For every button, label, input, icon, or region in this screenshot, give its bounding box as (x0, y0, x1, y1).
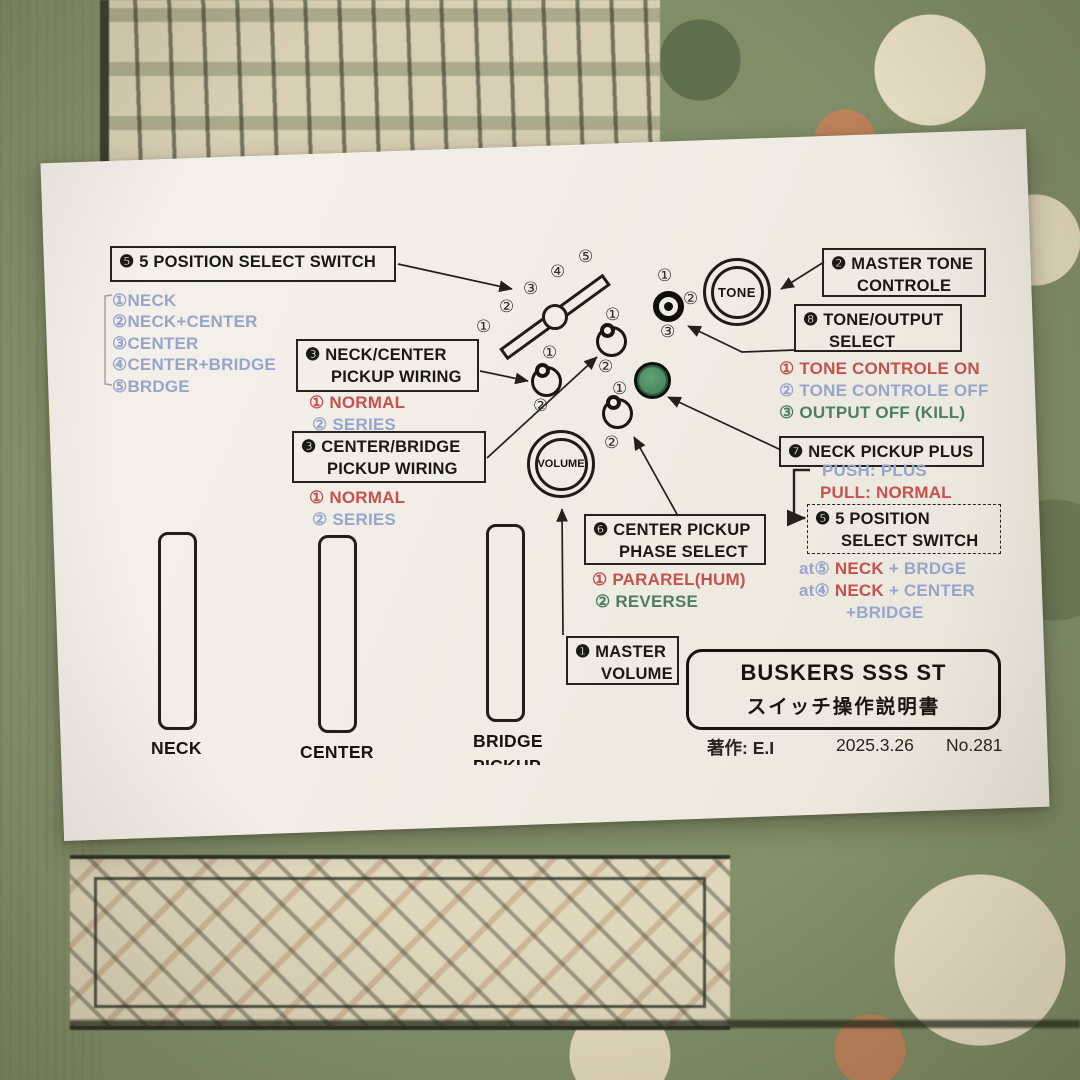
pickup-neck (158, 532, 197, 730)
box-text-line2: CONTROLE (831, 276, 977, 298)
box-text-line2: VOLUME (575, 664, 670, 686)
selector-pos-2: ② (683, 290, 698, 307)
option-neckcenter-normal: ① NORMAL (309, 393, 405, 413)
option-text: NORMAL (329, 488, 405, 507)
mini-switch-lever (600, 323, 615, 338)
box-text-line2: PICKUP WIRING (301, 459, 477, 481)
box-text: 5 POSITION SELECT SWITCH (139, 253, 376, 271)
mini-switch-a-pos2: ② (533, 397, 548, 414)
mini-switch-phase (602, 398, 633, 429)
badge-6: ❻ (593, 520, 608, 539)
pickup-bridge-label-clipped: PICKUP (473, 756, 543, 765)
diagram-layer: ❺ 5 POSITION SELECT SWITCH ①NECK ②NECK+C… (0, 0, 1080, 1080)
option-text: OUTPUT OFF (KILL) (799, 403, 965, 422)
option-text: REVERSE (615, 592, 698, 611)
option-num: ① (779, 359, 794, 378)
credit-author: 著作: E.I (707, 735, 774, 760)
title-line2: スイッチ操作説明書 (689, 690, 998, 719)
box-text-line2: PICKUP WIRING (305, 367, 470, 389)
lever-pos-4: ④ (550, 263, 565, 280)
badge-8: ❽ (803, 310, 818, 329)
option-num: ③ (779, 403, 794, 422)
label-box-5-position-select-switch: ❺ 5 POSITION SELECT SWITCH (110, 246, 396, 282)
position-list: ①NECK ②NECK+CENTER ③CENTER ④CENTER+BRIDG… (112, 290, 276, 397)
pickup-bridge-label: BRIDGE (473, 731, 543, 752)
tone-knob-label: TONE (711, 266, 764, 319)
volume-knob: VOLUME (527, 430, 595, 498)
at4-line: at④ NECK + CENTER (799, 581, 975, 601)
selector-center-dot (664, 302, 673, 311)
box-text-line2: PHASE SELECT (593, 542, 757, 564)
label-box-master-tone: ❷ MASTER TONE CONTROLE (822, 248, 986, 297)
pickup-bridge (486, 524, 525, 722)
title-line1: BUSKERS SSS ST (689, 660, 998, 686)
credit-number: No.281 (946, 735, 1002, 756)
position-item-4: ④CENTER+BRIDGE (112, 354, 276, 375)
badge-7: ❼ (788, 442, 803, 461)
option-num: ① (592, 570, 607, 589)
option-centerbridge-series: ② SERIES (312, 510, 396, 530)
mini-switch-a-pos1: ① (542, 344, 557, 361)
at-prefix: at④ (799, 581, 830, 600)
lever-pos-5: ⑤ (578, 248, 593, 265)
arrow-mastervolume-to-knob (562, 509, 563, 635)
title-box: BUSKERS SSS ST スイッチ操作説明書 (686, 649, 1001, 730)
bracket-position-list (105, 295, 112, 385)
option-pararel-hum: ① PARAREL(HUM) (592, 570, 746, 590)
option-pull-normal: PULL: NORMAL (820, 483, 952, 503)
credit-date: 2025.3.26 (836, 735, 914, 756)
box-text: MASTER (595, 643, 666, 661)
volume-knob-label: VOLUME (535, 438, 588, 491)
mini-switch-c-pos2: ② (604, 434, 619, 451)
box-text: NECK/CENTER (325, 346, 446, 364)
option-reverse: ② REVERSE (595, 592, 698, 612)
option-text: TONE CONTROLE OFF (799, 381, 988, 400)
position-item-3: ③CENTER (112, 333, 276, 354)
arrow-phase-to-switch (634, 437, 678, 516)
badge-3: ❸ (301, 437, 316, 456)
selector-pos-3: ③ (660, 323, 675, 340)
badge-1: ❶ (575, 642, 590, 661)
green-push-knob (634, 362, 671, 399)
at-red: NECK (835, 581, 884, 600)
option-num: ① (309, 488, 324, 507)
label-box-center-bridge-wiring: ❸ CENTER/BRIDGE PICKUP WIRING (292, 431, 486, 483)
arrow-mastertone-to-knob (781, 262, 824, 289)
lever-pos-2: ② (499, 298, 514, 315)
mini-switch-lever (535, 363, 550, 378)
arrow-toneoutput-to-bullseye (688, 326, 796, 352)
at-blue: + BRDGE (889, 559, 966, 578)
position-item-1: ①NECK (112, 290, 276, 311)
option-tone-on: ① TONE CONTROLE ON (779, 359, 980, 379)
position-item-2: ②NECK+CENTER (112, 311, 276, 332)
box-text: TONE/OUTPUT (823, 311, 943, 329)
option-num: ② (779, 381, 794, 400)
box-text: CENTER PICKUP (613, 521, 750, 539)
label-box-5-position-dashed: ❺ 5 POSITION SELECT SWITCH (807, 504, 1001, 554)
label-box-center-phase: ❻ CENTER PICKUP PHASE SELECT (584, 514, 766, 565)
option-centerbridge-normal: ① NORMAL (309, 488, 405, 508)
option-text: SERIES (332, 510, 396, 529)
label-box-neck-center-wiring: ❸ NECK/CENTER PICKUP WIRING (296, 339, 479, 392)
badge-3: ❸ (305, 345, 320, 364)
label-box-master-volume: ❶ MASTER VOLUME (566, 636, 679, 685)
pickup-neck-label: NECK (151, 738, 202, 759)
option-push-plus: PUSH: PLUS (822, 461, 927, 481)
badge-5: ❺ (119, 252, 134, 271)
arrow-neckplus-to-greenknob (668, 397, 781, 450)
at-prefix: at⑤ (799, 559, 830, 578)
at4-line-cont: +BRIDGE (846, 603, 923, 623)
selector-pos-1: ① (657, 267, 672, 284)
option-num: ② (595, 592, 610, 611)
lever-pos-1: ① (476, 318, 491, 335)
option-output-kill: ③ OUTPUT OFF (KILL) (779, 403, 965, 423)
mini-switch-b-pos2: ② (598, 358, 613, 375)
box-text: MASTER TONE (851, 255, 973, 273)
mini-switch-center-bridge (596, 326, 627, 357)
option-tone-off: ② TONE CONTROLE OFF (779, 381, 989, 401)
box-text-line2: SELECT SWITCH (815, 531, 993, 553)
lever-pivot (542, 304, 568, 330)
mini-switch-neck-center (531, 366, 562, 397)
pickup-center (318, 535, 357, 733)
mini-switch-c-pos1: ① (612, 380, 627, 397)
pickup-center-label: CENTER (300, 742, 374, 763)
option-num: ① (309, 393, 324, 412)
option-num: ② (312, 510, 327, 529)
photo-of-instruction-sheet: ❺ 5 POSITION SELECT SWITCH ①NECK ②NECK+C… (0, 0, 1080, 1080)
position-item-5: ⑤BRDGE (112, 376, 276, 397)
at5-line: at⑤ NECK + BRDGE (799, 559, 966, 579)
tone-knob: TONE (703, 258, 771, 326)
option-text: NORMAL (329, 393, 405, 412)
box-text-line2: SELECT (803, 332, 953, 354)
option-text: PARAREL(HUM) (612, 570, 745, 589)
badge-2: ❷ (831, 254, 846, 273)
lever-pos-3: ③ (523, 280, 538, 297)
mini-switch-b-pos1: ① (605, 306, 620, 323)
at-red: NECK (835, 559, 884, 578)
badge-5: ❺ (815, 509, 830, 528)
at-blue: + CENTER (889, 581, 975, 600)
option-text: TONE CONTROLE ON (799, 359, 979, 378)
box-text: 5 POSITION (835, 510, 930, 528)
box-text: NECK PICKUP PLUS (808, 443, 973, 461)
tone-output-selector (653, 291, 684, 322)
label-box-tone-output-select: ❽ TONE/OUTPUT SELECT (794, 304, 962, 352)
box-text: CENTER/BRIDGE (321, 438, 460, 456)
